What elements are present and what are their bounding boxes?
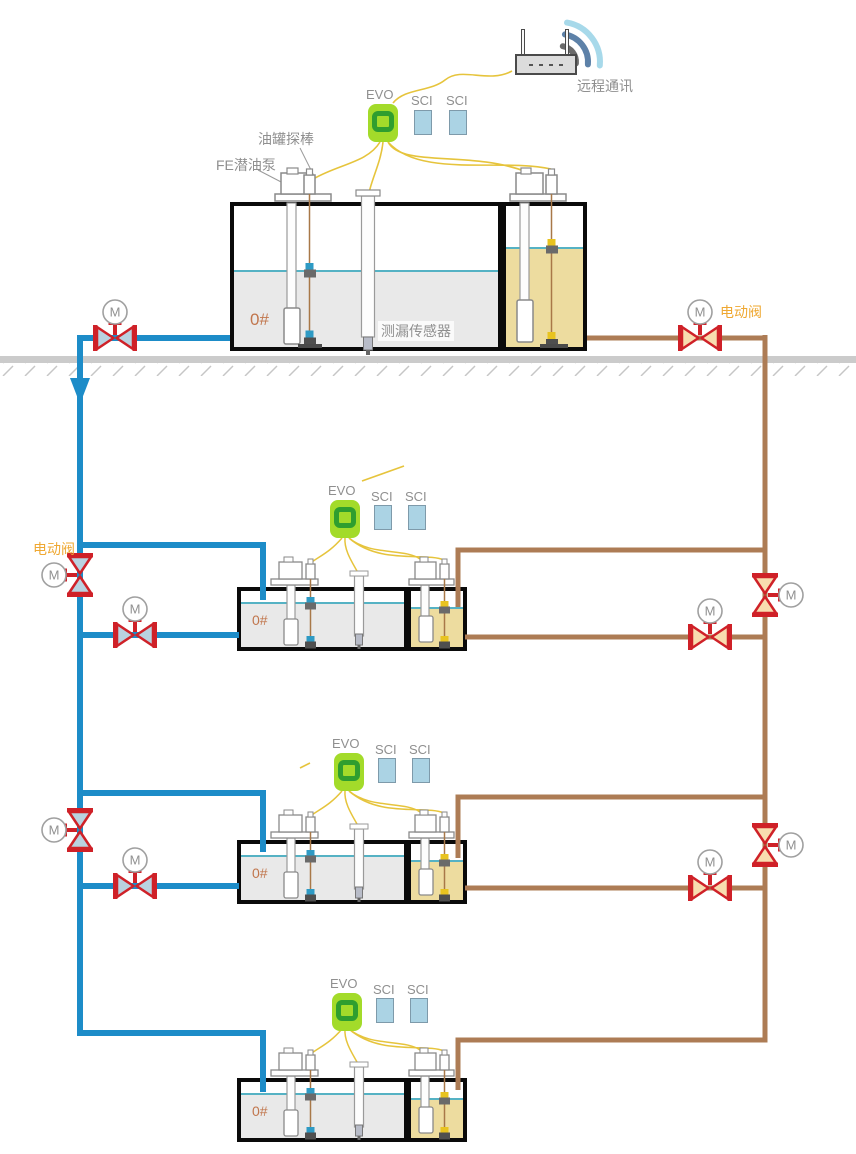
ground-line: [0, 356, 856, 376]
valve-motor-label: M: [786, 838, 797, 853]
evo-screen-icon: [338, 760, 360, 781]
valve-motor-label: M: [49, 823, 60, 838]
sci-module: [376, 998, 394, 1023]
electric-valve-label: 电动阀: [33, 539, 75, 559]
sci-label: SCI: [446, 93, 468, 108]
evo-console-4: [332, 993, 362, 1031]
sci-label: SCI: [407, 982, 429, 997]
evo-console-1: [368, 104, 398, 142]
tank1-product-label: 0#: [250, 310, 269, 330]
router-antenna: [521, 29, 525, 56]
valve-motor-label: M: [110, 305, 121, 320]
valve-motor-label: M: [130, 853, 141, 868]
flow-arrow-down: [70, 378, 90, 404]
sci-label: SCI: [371, 489, 393, 504]
small-tank-equipment: [271, 538, 454, 649]
sci-module: [408, 505, 426, 530]
remote-comm-label: 远程通讯: [577, 76, 633, 96]
evo-console-2: [330, 500, 360, 538]
router-antenna: [565, 29, 569, 56]
sci-module: [410, 998, 428, 1023]
evo-label: EVO: [366, 87, 393, 102]
evo-label: EVO: [330, 976, 357, 991]
tank3-equipment: [271, 791, 454, 902]
valve-motor-label: M: [695, 305, 706, 320]
supply-pipeline-blue: [80, 335, 263, 1092]
submersible-pump-label: FE潜油泵: [216, 155, 276, 175]
sci-label: SCI: [409, 742, 431, 757]
sci-label: SCI: [411, 93, 433, 108]
sci-module: [449, 110, 467, 135]
evo-label: EVO: [328, 483, 355, 498]
sci-label: SCI: [405, 489, 427, 504]
evo-screen-icon: [336, 1000, 358, 1021]
tank4-equipment: [271, 1029, 454, 1140]
evo-label: EVO: [332, 736, 359, 751]
valve-motor-label: M: [705, 855, 716, 870]
valve-motor-label: M: [49, 568, 60, 583]
tank-probe-label: 油罐探棒: [258, 129, 314, 149]
evo-screen-icon: [334, 507, 356, 528]
sci-label: SCI: [375, 742, 397, 757]
sci-module: [374, 505, 392, 530]
router-icon: [515, 54, 577, 75]
sci-label: SCI: [373, 982, 395, 997]
electric-valve-label: 电动阀: [720, 302, 762, 322]
tank3-product-label: 0#: [252, 865, 268, 881]
comm-wires-evo1: [300, 71, 551, 768]
sci-module: [378, 758, 396, 783]
valve-motor-label: M: [786, 588, 797, 603]
valve-motor-label: M: [705, 604, 716, 619]
diagram-canvas: M M M M M M M M M: [0, 0, 856, 1154]
return-pipeline-brown: [458, 335, 765, 1090]
evo-console-3: [334, 753, 364, 791]
sci-module: [412, 758, 430, 783]
tank4-product-label: 0#: [252, 1103, 268, 1119]
valve-motor-label: M: [130, 602, 141, 617]
leak-sensor-label: 测漏传感器: [378, 321, 454, 341]
tank2-product-label: 0#: [252, 612, 268, 628]
evo-screen-icon: [372, 111, 394, 132]
sci-module: [414, 110, 432, 135]
